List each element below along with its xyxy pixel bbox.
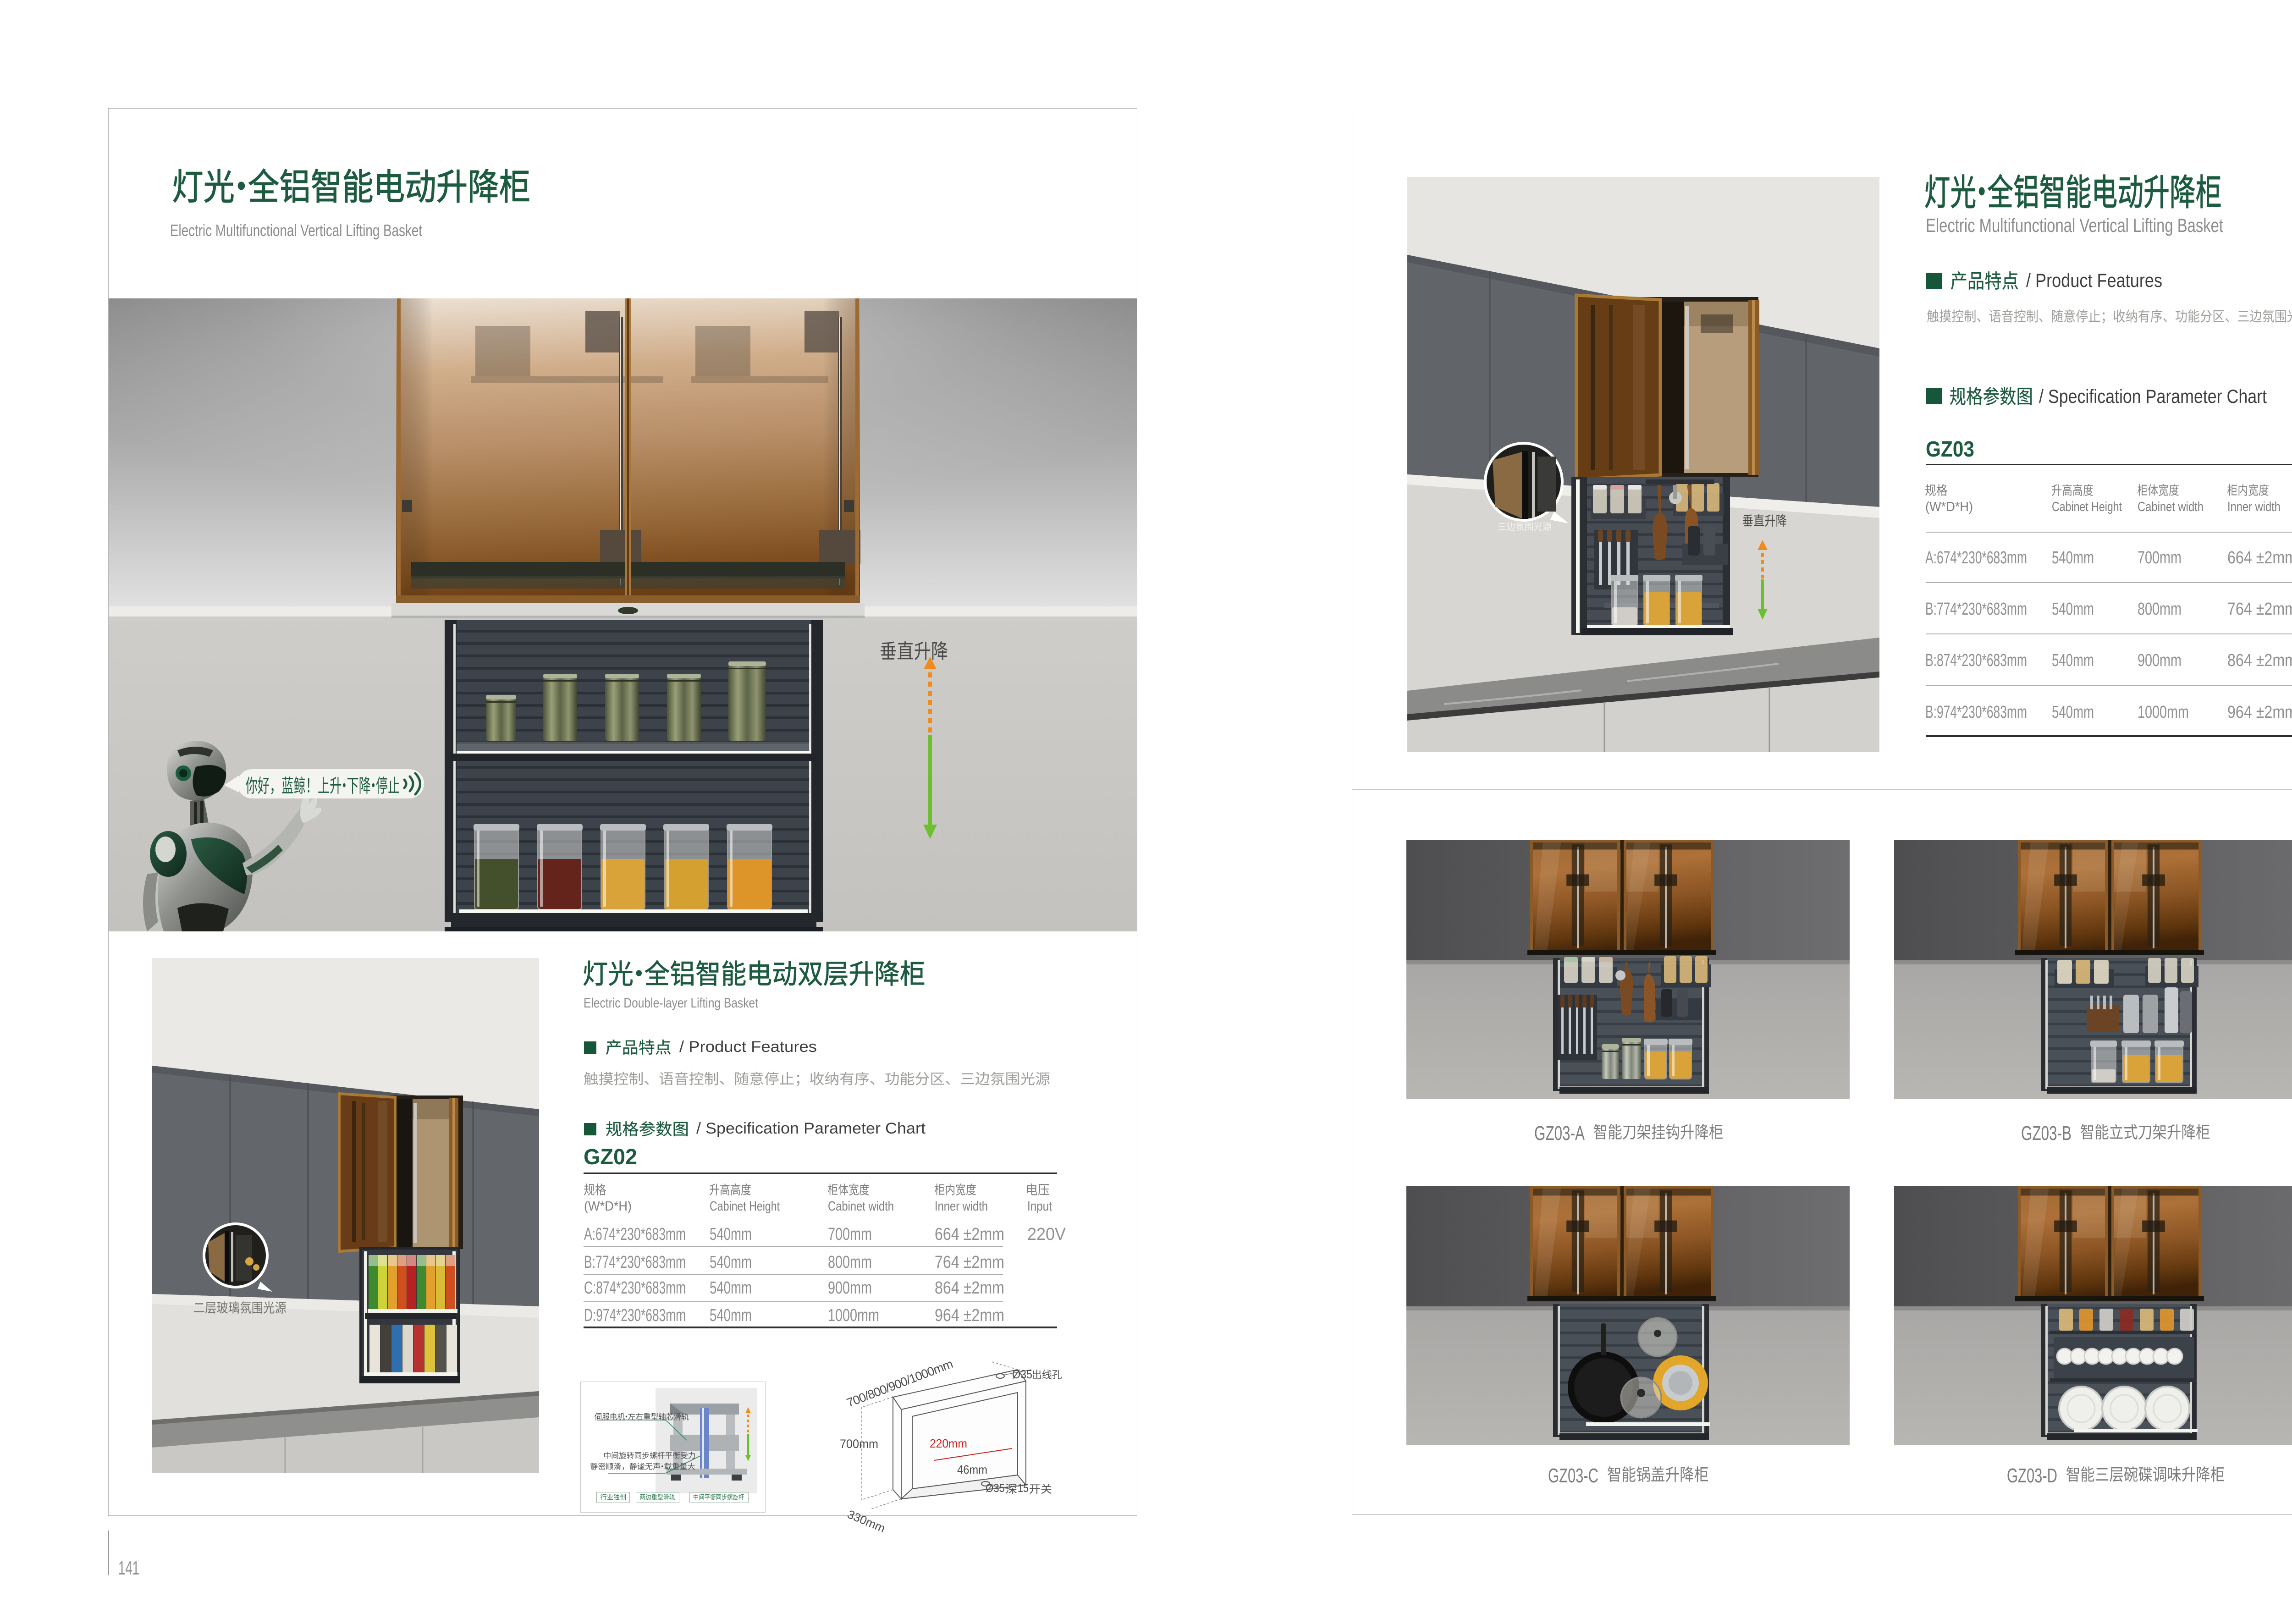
svg-text:Inner width: Inner width (935, 1199, 988, 1214)
svg-text:664 ±2mm: 664 ±2mm (935, 1225, 1004, 1244)
svg-text:Cabinet Height: Cabinet Height (2052, 500, 2122, 514)
svg-text:864 ±2mm: 864 ±2mm (935, 1278, 1004, 1298)
svg-text:Ø35: Ø35 (986, 1482, 1005, 1495)
svg-text:220mm: 220mm (930, 1437, 967, 1450)
svg-text:GZ02: GZ02 (584, 1145, 637, 1169)
svg-text:Electric Double-layer Lifting: Electric Double-layer Lifting Basket (584, 996, 759, 1011)
svg-text:141: 141 (118, 1557, 139, 1579)
svg-text:GZ03-B: GZ03-B (2021, 1122, 2072, 1145)
svg-text:B:774*230*683mm: B:774*230*683mm (1925, 600, 2027, 619)
svg-text:540mm: 540mm (710, 1306, 752, 1325)
svg-text:/ Specification Parameter Cha: / Specification Parameter Chart (2039, 385, 2267, 407)
svg-text:540mm: 540mm (710, 1253, 752, 1272)
svg-text:Cabinet width: Cabinet width (2138, 500, 2204, 514)
svg-text:220V: 220V (1027, 1225, 1066, 1244)
svg-text:C:874*230*683mm: C:874*230*683mm (584, 1278, 686, 1298)
svg-text:800mm: 800mm (828, 1253, 872, 1272)
svg-text:Inner width: Inner width (2227, 500, 2281, 514)
svg-text:GZ03-D: GZ03-D (2007, 1464, 2057, 1487)
svg-text:46mm: 46mm (957, 1463, 987, 1476)
svg-text:Input: Input (1027, 1199, 1052, 1214)
svg-text:Cabinet width: Cabinet width (828, 1199, 894, 1214)
svg-text:Electric Multifunctional Verti: Electric Multifunctional Vertical Liftin… (170, 221, 422, 240)
svg-text:540mm: 540mm (2052, 651, 2094, 670)
svg-text:540mm: 540mm (2052, 703, 2094, 722)
svg-text:700mm: 700mm (828, 1225, 872, 1244)
svg-text:/ Specification Parameter Cha: / Specification Parameter Chart (696, 1120, 926, 1137)
svg-text:900mm: 900mm (2138, 651, 2182, 670)
svg-text:/ Product Features: / Product Features (2026, 270, 2162, 291)
svg-text:B:874*230*683mm: B:874*230*683mm (1925, 651, 2027, 670)
svg-text:A:674*230*683mm: A:674*230*683mm (1925, 548, 2027, 567)
svg-text:B:774*230*683mm: B:774*230*683mm (584, 1253, 686, 1272)
svg-text:GZ03: GZ03 (1926, 437, 1974, 462)
svg-text:864 ±2mm: 864 ±2mm (2227, 651, 2292, 670)
svg-text:700mm: 700mm (840, 1437, 878, 1451)
svg-text:A:674*230*683mm: A:674*230*683mm (584, 1225, 686, 1244)
svg-text:D:974*230*683mm: D:974*230*683mm (584, 1306, 686, 1325)
svg-text:Cabinet Height: Cabinet Height (710, 1199, 780, 1214)
svg-text:764 ±2mm: 764 ±2mm (2227, 600, 2292, 619)
svg-text:540mm: 540mm (2052, 600, 2094, 619)
svg-text:(W*D*H): (W*D*H) (584, 1199, 632, 1214)
svg-text:B:974*230*683mm: B:974*230*683mm (1925, 703, 2027, 722)
svg-text:/ Product Features: / Product Features (679, 1038, 817, 1056)
svg-text:540mm: 540mm (710, 1278, 752, 1298)
svg-text:Electric Multifunctional Verti: Electric Multifunctional Vertical Liftin… (1926, 215, 2223, 236)
svg-text:900mm: 900mm (828, 1278, 872, 1298)
svg-text:Ø35: Ø35 (1012, 1367, 1032, 1381)
svg-text:540mm: 540mm (710, 1225, 752, 1244)
svg-text:GZ03-C: GZ03-C (1548, 1464, 1598, 1487)
svg-text:800mm: 800mm (2138, 600, 2182, 619)
svg-text:964 ±2mm: 964 ±2mm (935, 1306, 1004, 1325)
svg-text:15: 15 (1018, 1482, 1029, 1495)
svg-text:GZ03-A: GZ03-A (1534, 1122, 1585, 1145)
svg-text:1000mm: 1000mm (828, 1306, 879, 1325)
svg-text:1000mm: 1000mm (2138, 703, 2189, 722)
svg-text:764 ±2mm: 764 ±2mm (935, 1253, 1004, 1272)
svg-text:964 ±2mm: 964 ±2mm (2227, 703, 2292, 722)
svg-text:700mm: 700mm (2138, 548, 2182, 567)
svg-text:664 ±2mm: 664 ±2mm (2227, 548, 2292, 567)
svg-text:(W*D*H): (W*D*H) (1925, 500, 1973, 514)
svg-text:540mm: 540mm (2052, 548, 2094, 567)
